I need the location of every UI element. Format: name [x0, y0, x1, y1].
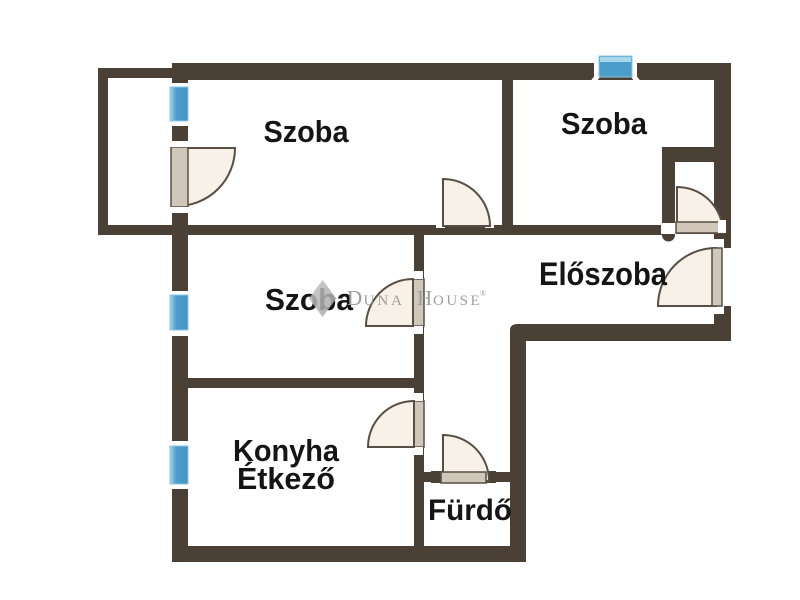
- svg-text:OUSE: OUSE: [433, 293, 482, 309]
- svg-text:Szoba: Szoba: [265, 282, 354, 317]
- svg-text:®: ®: [480, 289, 486, 298]
- svg-text:Szoba: Szoba: [264, 114, 350, 149]
- svg-text:Szoba: Szoba: [561, 106, 648, 141]
- svg-text:H: H: [417, 286, 432, 310]
- svg-text:Előszoba: Előszoba: [539, 256, 667, 292]
- svg-text:D: D: [347, 286, 362, 310]
- svg-text:UNA: UNA: [364, 293, 406, 309]
- svg-text:Étkező: Étkező: [237, 461, 335, 496]
- svg-text:Fürdő: Fürdő: [428, 494, 512, 527]
